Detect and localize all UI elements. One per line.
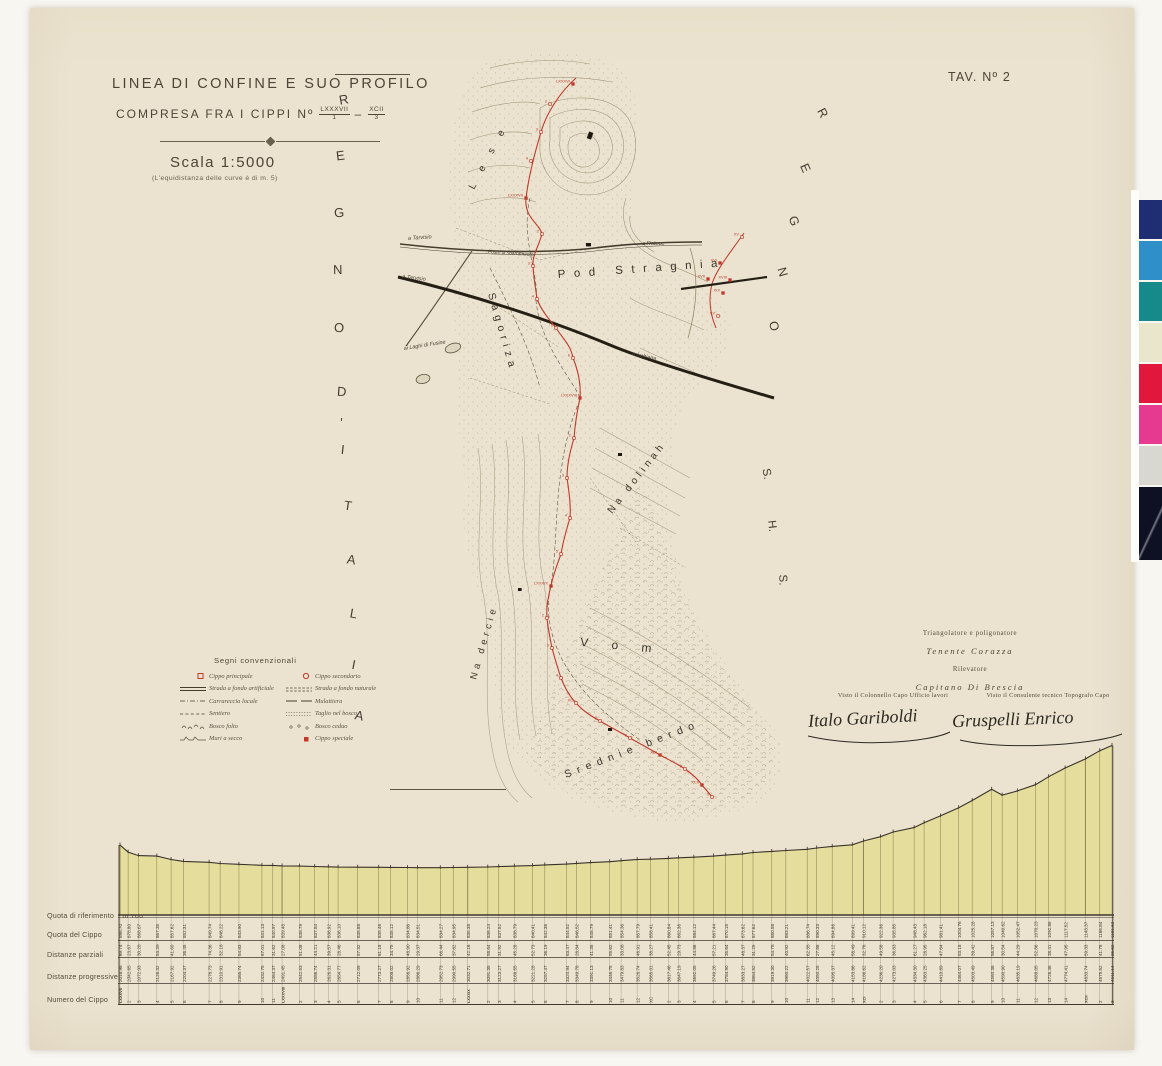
parziale-value: 41.35 [589,944,594,956]
parziale-value: 52.45 [666,944,671,956]
progressiva-value: 4410.89 [939,965,944,982]
quota-value: 835.12 [389,924,394,938]
numero-cippo-value: 10 [1000,997,1005,1003]
parziale-value: 41.60 [169,944,174,956]
parziale-value: 44.86 [692,944,697,956]
progressiva-value: 2808.02 [389,965,394,982]
quota-value: 867.35 [155,924,160,938]
quota-value: 868.67 [137,924,142,938]
progressiva-value: 4236.20 [879,965,884,982]
quota-value: 846.22 [218,924,223,938]
quota-value: 922.36 [879,924,884,938]
progressiva-value: 2204.37 [182,965,187,982]
parziale-value: 58.49 [850,944,855,956]
progressiva-value: 3565.01 [648,965,653,982]
progressiva-value: 4590.90 [1000,965,1005,982]
parziale-value: 30.28 [137,944,142,956]
progressiva-value: 4635.19 [1016,965,1021,982]
numero-cippo-value: 11 [805,998,810,1003]
parziale-value: 57.32 [356,944,361,956]
progressiva-value: 3617.46 [666,965,671,982]
parziale-value: 45.12 [830,944,835,956]
numero-cippo-value: 8 [575,1000,580,1003]
progressiva-value: 3391.13 [589,965,594,982]
numero-cippo-value: 9 [406,1000,411,1003]
numero-cippo-value: 6 [182,1000,187,1003]
numero-cippo-value: 6 [543,1000,548,1003]
numero-cippo-value: 10 [784,997,789,1003]
progressiva-value: 4334.30 [912,965,917,982]
numero-cippo-value: 2 [879,1000,884,1003]
calibration-patch [1139,446,1162,485]
progressiva-value: 4363.25 [922,965,927,982]
progressiva-value: 3168.55 [512,965,517,982]
parziale-value: 31.25 [751,944,756,956]
quota-value: 883.21 [784,924,789,938]
quota-value: 873.62 [740,924,745,938]
quota-value: 1025.28 [970,921,975,938]
parziale-value: 36.83 [891,944,896,956]
parziale-value: 28.84 [575,944,580,956]
progressiva-value: 3091.35 [486,965,491,982]
numero-cippo-value: 2 [1098,1000,1103,1003]
parziale-value: 41.78 [1098,944,1103,956]
parziale-value: 54.83 [237,944,242,956]
quota-value: 890.33 [815,924,820,938]
quota-value: 834.86 [406,924,411,938]
numero-cippo-value: XCII [1084,995,1089,1003]
numero-cippo-value: 8 [751,1000,756,1003]
numero-cippo-value: 10 [608,997,613,1003]
parziale-value: 44.29 [1016,944,1021,956]
numero-cippo-value: 11 [1016,998,1021,1003]
numero-cippo-value: 4 [155,1000,160,1003]
numero-cippo-value: 3 [497,1000,502,1003]
quota-value: 836.24 [486,924,491,938]
parziale-value: 38.41 [1047,944,1052,956]
numero-cippo-value: 6 [724,1000,729,1003]
progressiva-value: 2952.73 [438,965,443,982]
numero-cippo-value: 13 [830,997,835,1003]
quota-value: 867.44 [712,924,717,938]
numero-cippo-value: 9 [237,1000,242,1003]
quota-value: 1092.86 [1047,921,1052,938]
numero-cippo-value: 3 [891,1000,896,1003]
parziale-value: 53.39 [155,944,160,956]
quota-value: 834.27 [438,924,443,938]
progressiva-value: 3919.30 [770,965,775,982]
progressiva-value: 4153.86 [850,965,855,982]
parziale-value: 40.92 [784,944,789,956]
numero-cippo-value: 11 [438,998,443,1003]
quota-value: 854.36 [619,924,624,938]
parziale-value: 28.46 [336,944,341,956]
quota-value: 857.62 [169,924,174,938]
progressiva-value: 4833.74 [1084,965,1089,982]
quota-value: 836.92 [327,924,332,938]
progressiva-value: 4774.41 [1063,965,1068,982]
progressiva-value: 4503.49 [970,965,975,982]
progressiva-value: 2167.92 [169,965,174,982]
parziale-value: 23.67 [126,944,131,956]
numero-cippo-value: 2 [486,1000,491,1003]
progressiva-value: 3479.83 [619,965,624,982]
parziale-value: 39.57 [327,944,332,956]
parziale-value: 51.08 [298,944,303,956]
progressiva-value: 4688.05 [1034,965,1039,982]
quota-value: 836.10 [336,924,341,938]
quota-value: 839.48 [280,924,285,938]
numero-cippo-value: 11 [271,998,276,1003]
numero-cippo-value: 7 [565,1000,570,1003]
numero-cippo-value: 9 [770,1000,775,1003]
parziale-value: 46.91 [635,944,640,956]
numero-cippo-value: XC [648,996,653,1003]
progressiva-value: 2042.65 [126,965,131,982]
quota-value: 935.85 [891,924,896,938]
quota-value: 834.51 [416,924,421,938]
numero-cippo-value: XCI [862,997,867,1004]
parziale-value: 74.36 [207,944,212,956]
progressiva-value: 3320.94 [565,965,570,982]
progressiva-value: 2278.73 [207,965,212,982]
quota-value: 862.36 [677,924,682,938]
parziale-value: 32.76 [862,944,867,956]
quota-value: 840.97 [271,924,276,938]
quota-value: 852.31 [182,924,187,938]
numero-cippo-value: 12 [1034,997,1039,1003]
quota-value: 843.90 [237,924,242,938]
parziale-value: 31.62 [271,944,276,956]
parziale-value: 28.95 [922,944,927,956]
progressiva-value: 4095.37 [830,965,835,982]
quota-value: 877.62 [751,924,756,938]
quota-value: 837.84 [313,924,318,938]
numero-cippo-value: 7 [957,1000,962,1003]
numero-cippo-value: 4 [912,1000,917,1003]
progressiva-value: 2432.75 [260,965,265,982]
progressiva-value: 3692.05 [692,965,697,982]
parziale-value: 61.27 [912,944,917,956]
numero-cippo-value: 3 [137,1000,142,1003]
quota-value: 841.13 [260,924,265,938]
quota-value: 835.38 [466,924,471,938]
parziale-value: 47.95 [1063,944,1068,956]
numero-cippo-value: 5 [922,1000,927,1003]
numero-cippo-value: 14 [1063,997,1068,1003]
numero-cippo-value: 5 [169,1000,174,1003]
numero-cippo-value: 5 [531,1000,536,1003]
progressiva-value: 4726.46 [1047,965,1052,982]
quota-value: 837.52 [497,924,502,938]
quota-value: 835.46 [377,924,382,938]
parziale-value: 62.35 [805,944,810,956]
progressiva-value: 3526.74 [635,965,640,982]
parziale-value: 27.68 [815,944,820,956]
numero-cippo-value: 5 [336,1000,341,1003]
numero-cippo-value: 11 [619,998,624,1003]
progressiva-value: 4273.03 [891,965,896,982]
quota-value: 838.79 [298,924,303,938]
quota-value: 1070.23 [1034,921,1039,938]
calibration-patch [1139,241,1162,280]
progressiva-value: 4875.52 [1098,965,1103,982]
parziale-value: 39.42 [970,944,975,956]
progressiva-value: 3749.26 [712,965,717,982]
progressiva-value: 2365.74 [237,965,242,982]
numero-cippo-value: 9 [990,1000,995,1003]
parziale-value: 66.44 [438,944,443,956]
quota-value: 962.18 [922,924,927,938]
quota-value: 1143.37 [1084,921,1089,938]
quota-value: 858.41 [648,924,653,938]
numero-cippo-value: 4 [327,1000,332,1003]
quota-value: 948.43 [912,924,917,938]
numero-cippo-value: LXXXVIII [280,987,285,1003]
quota-value: 842.36 [543,924,548,938]
quota-value: 838.79 [512,924,517,938]
profile-area [120,746,1112,916]
calibration-patch [1139,200,1162,239]
quota-value: 844.52 [565,924,570,938]
quota-value: 880.58 [770,924,775,938]
calibration-patch [1139,405,1162,444]
parziale-value: 35.64 [724,944,729,956]
numero-cippo-value: 7 [207,1000,212,1003]
progressiva-value: 2626.31 [327,965,332,982]
calibration-patch [1139,487,1162,560]
parziale-value: 32.18 [218,944,223,956]
parziale-value: 52.86 [1034,944,1039,956]
parziale-value: 33.08 [619,944,624,956]
progressiva-value: 4186.62 [862,965,867,982]
progressiva-value: 2712.09 [356,965,361,982]
quota-value: 1052.47 [1016,921,1021,938]
parziale-value: 49.58 [879,944,884,956]
quota-value: 1117.52 [1063,922,1068,938]
progressiva-value: 2072.93 [137,965,142,982]
parziale-value: 48.37 [740,944,745,956]
quota-value: 860.84 [666,924,671,938]
progressiva-value: 2990.55 [451,965,456,982]
parziale-value: 27.08 [280,944,285,956]
parziale-value: 55.62 [608,944,613,956]
parziale-value: 29.37 [416,944,421,956]
progressiva-value: 2126.32 [155,965,160,982]
numero-cippo-value: 12 [451,997,456,1003]
numero-cippo-value: 2 [666,1000,671,1003]
parziale-value: 54.78 [770,944,775,956]
progressiva-value: 3446.75 [608,965,613,982]
progressiva-value: 2856.92 [406,965,411,982]
parziale-value: 36.19 [543,944,548,956]
parziale-value: 42.16 [466,944,471,956]
parziale-value: 61.18 [377,944,382,956]
progressiva-value: 3784.90 [724,965,729,982]
numero-cippo-value: 5 [712,1000,717,1003]
progressiva-value: 2586.74 [313,965,318,982]
parziale-value: 44.21 [313,944,318,956]
quota-value: 834.95 [451,924,456,938]
scanned-map-sheet-canvas: LINEA DI CONFINE E SUO PROFILO COMPRESA … [0,0,1162,1066]
progressiva-value: 2886.29 [416,965,421,982]
parziale-value: 67.01 [260,944,265,956]
progressiva-value: 3864.52 [751,965,756,982]
calibration-patch [1139,282,1162,321]
elevation-profile-and-table: 898.7089.742018.98LXXXVII878.8023.672042… [0,0,1162,1066]
numero-cippo-value: 3 [677,1000,682,1003]
parziale-value: 29.73 [677,944,682,956]
progressiva-value: 2773.27 [377,965,382,982]
quota-value: 846.52 [575,924,580,938]
parziale-value: 63.47 [565,944,570,956]
progressiva-value: 2654.77 [336,965,341,982]
numero-cippo-value: 4 [512,1000,517,1003]
parziale-value: 57.21 [712,944,717,956]
progressiva-value: 3123.27 [497,965,502,982]
parziale-value: 52.73 [531,944,536,956]
calibration-patch [1139,323,1162,362]
numero-cippo-value: 3 [313,1000,318,1003]
numero-cippo-value: 10 [260,997,265,1003]
scan-margin-strip [1131,190,1139,562]
parziale-value: 30.54 [1000,944,1005,956]
parziale-value: 34.75 [389,944,394,956]
parziale-value: 38.27 [648,944,653,956]
progressiva-value: 3032.71 [466,965,471,982]
quota-value: 1040.62 [1000,921,1005,938]
numero-cippo-value: 6 [939,1000,944,1003]
numero-cippo-value: 4 [692,1000,697,1003]
numero-cippo-value: 8 [389,1000,394,1003]
quota-value: 857.79 [635,924,640,938]
parziale-value: 47.64 [939,944,944,956]
quota-value: 899.41 [850,924,855,938]
numero-cippo-value: 9 [589,1000,594,1003]
parziale-value: 37.82 [451,944,456,956]
numero-cippo-value: 12 [815,997,820,1003]
numero-cippo-value: 8 [218,1000,223,1003]
progressiva-value: 4022.57 [805,965,810,982]
numero-cippo-value: 7 [740,1000,745,1003]
quota-value: 981.41 [939,924,944,938]
quota-value: 848.79 [589,924,594,938]
progressiva-value: 2464.37 [271,965,276,982]
quota-value: 849.74 [207,924,212,938]
quota-value: 894.86 [830,924,835,938]
quota-value: 910.12 [862,924,867,938]
progressiva-value: 3257.47 [543,965,548,982]
progressiva-value: 3221.28 [531,965,536,982]
parziale-value: 58.64 [486,944,491,956]
quota-value: 864.12 [692,924,697,938]
quota-value: 1057.13 [990,921,995,938]
numero-cippo-value: 2 [298,1000,303,1003]
numero-cippo-value: 10 [416,997,421,1003]
numero-cippo-value: 12 [635,997,640,1003]
parziale-value: 36.45 [182,944,187,956]
quota-value: 835.88 [356,924,361,938]
numero-cippo-value: 2 [126,1000,131,1003]
progressiva-value: 4464.07 [957,965,962,982]
parziale-value: 53.18 [957,944,962,956]
numero-cippo-value: 7 [377,1000,382,1003]
progressiva-value: 3647.19 [677,965,682,982]
quota-value: 886.74 [805,924,810,938]
quota-value: 1166.84 [1098,921,1103,938]
progressiva-value: 2310.91 [218,965,223,982]
parziale-value: 56.87 [990,944,995,956]
numero-cippo-value: 14 [850,997,855,1003]
progressiva-value: 4050.25 [815,965,820,982]
calibration-patch [1139,364,1162,403]
quota-value: 878.80 [126,924,131,938]
numero-cippo-value: 13 [1047,997,1052,1003]
numero-cippo-value: 6 [356,1000,361,1003]
progressiva-value: 4560.36 [990,965,995,982]
numero-cippo-value: 8 [970,1000,975,1003]
numero-cippo-value: LXXXIX [466,989,471,1003]
parziale-value: 45.28 [512,944,517,956]
quota-value: 840.41 [531,924,536,938]
progressiva-value: 3833.27 [740,965,745,982]
progressiva-value: 3960.22 [784,965,789,982]
parziale-value: 48.90 [406,944,411,956]
progressiva-value: 2491.45 [280,965,285,982]
progressiva-value: 2542.53 [298,965,303,982]
quota-value: 870.15 [724,924,729,938]
parziale-value: 31.92 [497,944,502,956]
quota-value: 851.41 [608,924,613,938]
parziale-value: 59.33 [1084,944,1089,956]
quota-value: 1004.76 [957,921,962,938]
progressiva-value: 3349.78 [575,965,580,982]
